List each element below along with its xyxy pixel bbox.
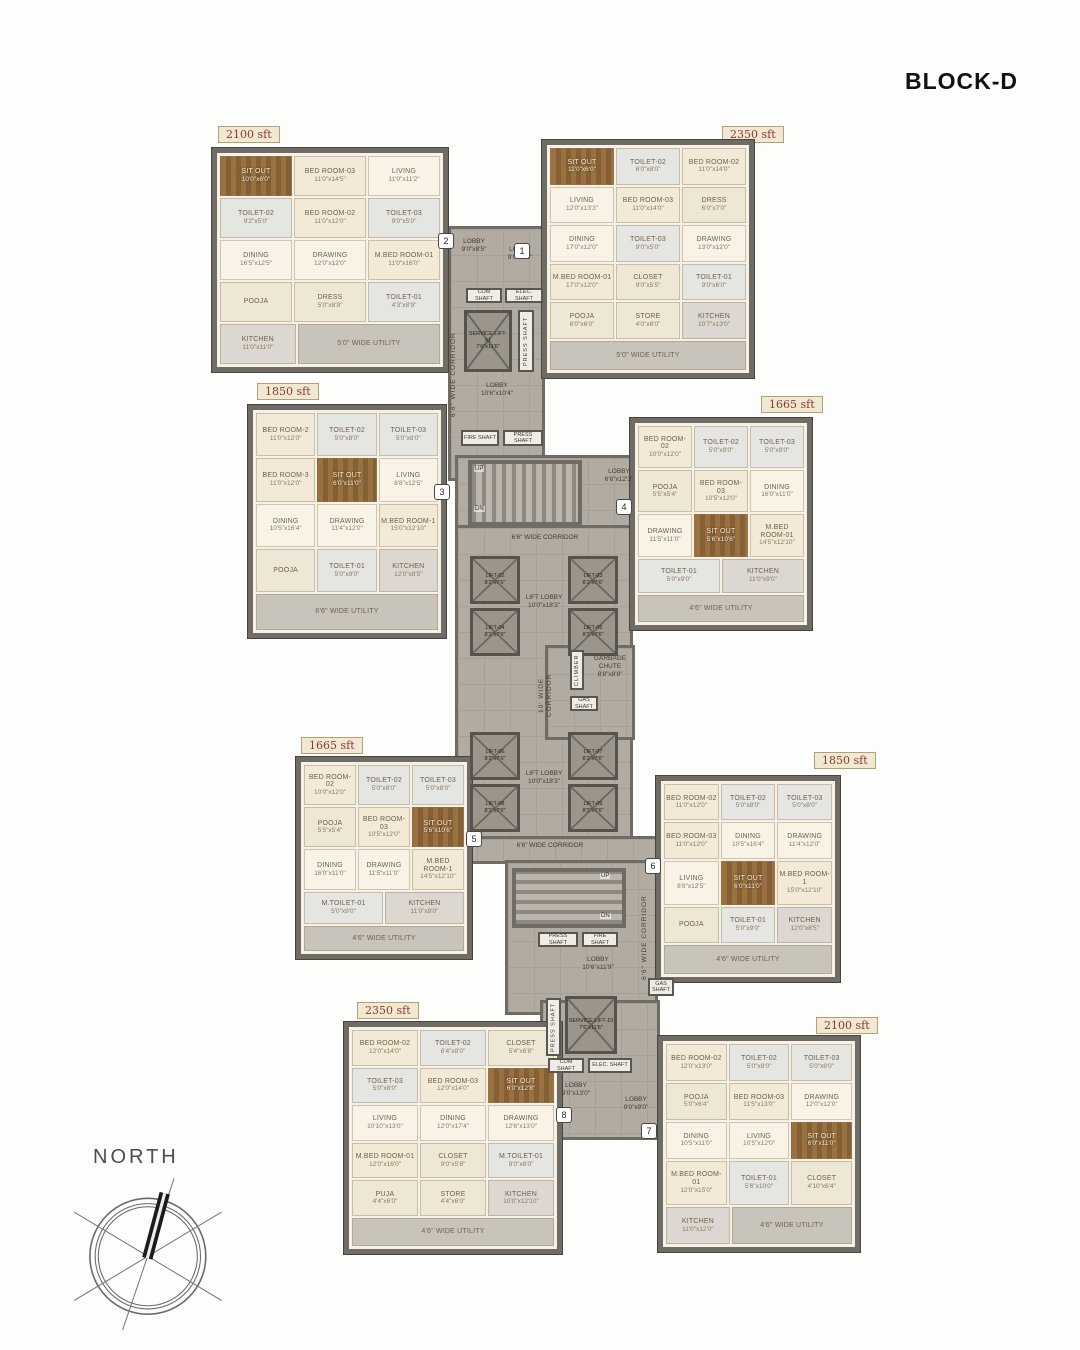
lift: LIFT-028'2"x7'6" bbox=[470, 556, 520, 604]
lift: LIFT-088'2"x7'6" bbox=[470, 784, 520, 832]
lobby-mid-label: LOBBY10'6"x11'9" bbox=[566, 956, 630, 972]
room-tile: M.BED ROOM-0117'0"x12'0" bbox=[550, 264, 614, 301]
room-tile: DRAWING12'0"x12'0" bbox=[294, 240, 366, 280]
room-tile: TOILET-015'0"x9'0" bbox=[721, 907, 776, 943]
core-tag-1: 1 bbox=[514, 243, 530, 259]
room-tile: LIVING8'8"x12'5" bbox=[664, 861, 719, 905]
room-tile: TOILET-035'0"x8'0" bbox=[750, 426, 804, 468]
climber-shaft: CLIMBER bbox=[570, 650, 584, 690]
compass-icon bbox=[72, 1172, 230, 1330]
corridor-label-vertical-top: 6'6" WIDE CORRIDOR bbox=[450, 300, 458, 450]
room-tile: KITCHEN11'0"x12'0" bbox=[666, 1207, 730, 1244]
room-tile: BED ROOM-0211'0"x14'0" bbox=[682, 148, 746, 185]
corridor-label-10: 10' WIDE CORRIDOR bbox=[538, 655, 554, 735]
room-tile: TOILET-035'0"x8'0" bbox=[352, 1068, 418, 1104]
room-tile: DRESS6'0"x7'0" bbox=[682, 187, 746, 224]
room-tile: KITCHEN11'0"x9'0" bbox=[385, 892, 464, 924]
room-tile: TOILET-025'0"x8'0" bbox=[317, 413, 376, 456]
room-tile: TOILET-019'0"x6'0" bbox=[682, 264, 746, 301]
room-tile: LIVING8'8"x12'5" bbox=[379, 458, 438, 501]
lobby-7-label: LOBBY9'0"x9'0" bbox=[608, 1096, 664, 1112]
room-tile: M.BED ROOM-115'0"x12'10" bbox=[379, 504, 438, 547]
elec-shaft: ELEC. SHAFT bbox=[505, 288, 543, 303]
unit-8-2350: BED ROOM-0212'0"x14'0"TOILET-026'4"x8'0"… bbox=[344, 1022, 562, 1254]
room-tile: DRAWING13'0"x12'0" bbox=[682, 225, 746, 262]
room-tile: BED ROOM-0311'0"x14'5" bbox=[294, 156, 366, 196]
room-tile: TOILET-025'0"x8'0" bbox=[721, 784, 776, 820]
core-tag-2: 2 bbox=[438, 233, 454, 249]
room-tile: BED ROOM-0211'0"x12'0" bbox=[664, 784, 719, 820]
room-tile: LIVING11'0"x11'2" bbox=[368, 156, 440, 196]
room-tile: BED ROOM-0312'0"x14'0" bbox=[420, 1068, 486, 1104]
press-shaft-top: PRESS SHAFT bbox=[518, 310, 534, 372]
floor-plan-canvas: { "header": { "title": "BLOCK-D" }, "com… bbox=[0, 0, 1080, 1350]
lift: LIFT-058'2"x7'6" bbox=[568, 608, 618, 656]
room-tile: 5'0" WIDE UTILITY bbox=[550, 341, 746, 370]
room-tile: DRAWING11'4"x12'0" bbox=[317, 504, 376, 547]
room-tile: M.TOILET-015'0"x9'0" bbox=[304, 892, 383, 924]
room-tile: TOILET-015'6"x10'0" bbox=[729, 1161, 790, 1206]
room-tile: BED ROOM-0212'0"x13'0" bbox=[666, 1044, 727, 1081]
room-tile: 4'6" WIDE UTILITY bbox=[352, 1218, 554, 1246]
press-shaft-bottom: PRESS SHAFT bbox=[546, 998, 561, 1056]
lift: LIFT-078'2"x7'6" bbox=[568, 732, 618, 780]
elec-shaft-bottom: ELEC. SHAFT bbox=[588, 1058, 632, 1073]
room-tile: CLOSET9'0"x5'8" bbox=[420, 1143, 486, 1179]
unit-2-rooms: SIT OUT10'0"x6'0"BED ROOM-0311'0"x14'5"L… bbox=[219, 155, 441, 365]
area-badge-unit-2: 2100 sft bbox=[218, 126, 280, 143]
room-tile: POOJA bbox=[220, 282, 292, 322]
room-tile: TOILET-035'0"x8'0" bbox=[379, 413, 438, 456]
room-tile: CLOSET4'10"x6'4" bbox=[791, 1161, 852, 1206]
room-tile: TOILET-039'0"x5'0" bbox=[616, 225, 680, 262]
room-tile: 4'6" WIDE UTILITY bbox=[732, 1207, 852, 1244]
lobby-4-label: LOBBY6'6"x12'3" bbox=[588, 468, 650, 484]
fire-shaft-top: FIRE SHAFT bbox=[461, 430, 499, 446]
room-tile: LIVING12'0"x13'3" bbox=[550, 187, 614, 224]
room-tile: BED ROOM-0310'5"x12'0" bbox=[694, 470, 748, 512]
room-tile: 5'0" WIDE UTILITY bbox=[298, 324, 440, 364]
service-lift-10: SERVICE LIFT-107'6"x11'6" bbox=[565, 996, 617, 1054]
lift-lobby-label-b: LIFT LOBBY10'0"x18'3" bbox=[520, 770, 568, 786]
room-tile: M.BED ROOM-115'0"x12'10" bbox=[777, 861, 832, 905]
gas-shaft-bottom: GAS SHAFT bbox=[648, 978, 674, 996]
room-tile: 4'6" WIDE UTILITY bbox=[304, 926, 464, 951]
room-tile: BED ROOM-0210'0"x12'0" bbox=[638, 426, 692, 468]
lobby-top-label: LOBBY10'6"x10'4" bbox=[462, 382, 532, 398]
corridor-label-h2: 6'6" WIDE CORRIDOR bbox=[470, 842, 630, 850]
room-tile: STORE4'0"x6'0" bbox=[616, 302, 680, 339]
room-tile: KITCHEN12'0"x8'5" bbox=[777, 907, 832, 943]
room-tile: LIVING10'5"x12'0" bbox=[729, 1122, 790, 1159]
room-tile: CLOSET9'0"x5'5" bbox=[616, 264, 680, 301]
com-shaft: COM SHAFT bbox=[466, 288, 502, 303]
page-title: BLOCK-D bbox=[905, 68, 1018, 95]
lift: LIFT-038'2"x7'6" bbox=[568, 556, 618, 604]
room-tile: TOILET-025'0"x8'0" bbox=[694, 426, 748, 468]
lift-lobby-label-a: LIFT LOBBY10'0"x18'3" bbox=[520, 594, 568, 610]
room-tile: M.BED ROOM-0112'0"x16'0" bbox=[352, 1143, 418, 1179]
room-tile: KITCHEN10'0"x12'10" bbox=[488, 1180, 554, 1216]
garbage-chute-label: GARBAGE CHUTE8'8"x8'8" bbox=[588, 655, 632, 679]
room-tile: POOJA6'0"x6'0" bbox=[550, 302, 614, 339]
corridor-label-h1: 6'6" WIDE CORRIDOR bbox=[465, 534, 625, 542]
unit-2-2100: SIT OUT10'0"x6'0"BED ROOM-0311'0"x14'5"L… bbox=[212, 148, 448, 372]
room-tile: BED ROOM-311'0"x12'0" bbox=[256, 458, 315, 501]
press-shaft-top2: PRESS SHAFT bbox=[503, 430, 543, 446]
core-tag-4: 4 bbox=[616, 499, 632, 515]
compass-north-label: NORTH bbox=[93, 1146, 179, 1169]
area-badge-unit-7: 2100 sft bbox=[816, 1017, 878, 1034]
room-tile: PUJA4'4"x6'0" bbox=[352, 1180, 418, 1216]
room-tile: M.BED ROOM-0114'5"x12'10" bbox=[750, 514, 804, 556]
room-tile: DRAWING11'5"x11'0" bbox=[638, 514, 692, 556]
room-tile: DINING10'5"x11'0" bbox=[666, 1122, 727, 1159]
room-tile: M.TOILET-019'0"x8'0" bbox=[488, 1143, 554, 1179]
room-tile: STORE4'4"x6'0" bbox=[420, 1180, 486, 1216]
com-shaft-bottom: COM SHAFT bbox=[548, 1058, 584, 1073]
room-tile: TOILET-014'3"x8'9" bbox=[368, 282, 440, 322]
stairs-dn-label: DN bbox=[474, 506, 485, 512]
press-shaft-lower: PRESS SHAFT bbox=[538, 932, 578, 947]
area-badge-unit-6: 1850 sft bbox=[814, 752, 876, 769]
room-tile: POOJA5'5"x5'4" bbox=[304, 807, 356, 847]
room-tile: TOILET-025'0"x8'0" bbox=[358, 765, 410, 805]
room-tile: DRAWING11'4"x12'0" bbox=[777, 822, 832, 858]
room-tile: BED ROOM-0311'0"x14'0" bbox=[616, 187, 680, 224]
lift: LIFT-048'2"x7'6" bbox=[470, 608, 520, 656]
unit-1-2350: SIT OUT11'0"x6'0"TOILET-026'0"x8'0"BED R… bbox=[542, 140, 754, 378]
unit-3-1850: BED ROOM-211'0"x12'0"TOILET-025'0"x8'0"T… bbox=[248, 405, 446, 638]
room-tile: SIT OUT5'6"x10'6" bbox=[694, 514, 748, 556]
room-tile: DRAWING12'6"x13'0" bbox=[488, 1105, 554, 1141]
room-tile: DRAWING12'0"x12'0" bbox=[791, 1083, 852, 1120]
room-tile: SIT OUT6'0"x12'8" bbox=[488, 1068, 554, 1104]
room-tile: M.BED ROOM-0111'0"x16'0" bbox=[368, 240, 440, 280]
gas-shaft-mid: GAS SHAFT bbox=[570, 696, 598, 711]
room-tile: DINING10'5"x16'4" bbox=[721, 822, 776, 858]
room-tile: TOILET-035'0"x8'0" bbox=[777, 784, 832, 820]
unit-8-rooms: BED ROOM-0212'0"x14'0"TOILET-026'4"x8'0"… bbox=[351, 1029, 555, 1247]
room-tile: SIT OUT6'0"x11'0" bbox=[317, 458, 376, 501]
unit-1-rooms: SIT OUT11'0"x6'0"TOILET-026'0"x8'0"BED R… bbox=[549, 147, 747, 371]
area-badge-unit-4: 1665 sft bbox=[761, 396, 823, 413]
room-tile: TOILET-026'4"x8'0" bbox=[420, 1030, 486, 1066]
staircase-upper bbox=[468, 460, 582, 526]
unit-4-rooms: BED ROOM-0210'0"x12'0"TOILET-025'0"x8'0"… bbox=[637, 425, 805, 623]
room-tile: BED ROOM-0210'0"x12'0" bbox=[304, 765, 356, 805]
room-tile: TOILET-035'0"x8'0" bbox=[791, 1044, 852, 1081]
room-tile: CLOSET5'4"x6'8" bbox=[488, 1030, 554, 1066]
room-tile: BED ROOM-211'0"x12'0" bbox=[256, 413, 315, 456]
room-tile: 4'6" WIDE UTILITY bbox=[664, 945, 832, 974]
room-tile: LIVING10'10"x13'0" bbox=[352, 1105, 418, 1141]
room-tile: M.BED ROOM-114'5"x12'10" bbox=[412, 849, 464, 889]
unit-7-rooms: BED ROOM-0212'0"x13'0"TOILET-025'0"x8'0"… bbox=[665, 1043, 853, 1245]
room-tile: SIT OUT6'0"x11'0" bbox=[791, 1122, 852, 1159]
unit-4-1665: BED ROOM-0210'0"x12'0"TOILET-025'0"x8'0"… bbox=[630, 418, 812, 630]
room-tile: BED ROOM-0310'5"x12'0" bbox=[358, 807, 410, 847]
unit-6-rooms: BED ROOM-0211'0"x12'0"TOILET-025'0"x8'0"… bbox=[663, 783, 833, 975]
core-tag-8: 8 bbox=[556, 1107, 572, 1123]
room-tile: DINING12'0"x17'4" bbox=[420, 1105, 486, 1141]
room-tile: TOILET-015'0"x9'0" bbox=[638, 559, 720, 593]
room-tile: DRESS5'0"x8'9" bbox=[294, 282, 366, 322]
room-tile: BED ROOM-0212'0"x14'0" bbox=[352, 1030, 418, 1066]
room-tile: DINING17'0"x12'0" bbox=[550, 225, 614, 262]
room-tile: POOJA bbox=[664, 907, 719, 943]
area-badge-unit-8: 2350 sft bbox=[357, 1002, 419, 1019]
room-tile: TOILET-015'0"x9'0" bbox=[317, 549, 376, 592]
room-tile: SIT OUT11'0"x6'0" bbox=[550, 148, 614, 185]
service-lift-01: SERVICE LIFT-017'6"x11'6" bbox=[464, 310, 512, 372]
room-tile: DRAWING11'5"x11'0" bbox=[358, 849, 410, 889]
unit-6-1850: BED ROOM-0211'0"x12'0"TOILET-025'0"x8'0"… bbox=[656, 776, 840, 982]
room-tile: TOILET-039'0"x5'0" bbox=[368, 198, 440, 238]
room-tile: KITCHEN10'7"x13'0" bbox=[682, 302, 746, 339]
lift: LIFT-098'2"x7'6" bbox=[568, 784, 618, 832]
room-tile: KITCHEN11'0"x9'0" bbox=[722, 559, 804, 593]
room-tile: POOJA bbox=[256, 549, 315, 592]
unit-7-2100: BED ROOM-0212'0"x13'0"TOILET-025'0"x8'0"… bbox=[658, 1036, 860, 1252]
core-tag-7: 7 bbox=[641, 1123, 657, 1139]
stairs-dn-label-2: DN bbox=[600, 913, 611, 919]
lobby-8-label: LOBBY9'0"x13'0" bbox=[548, 1082, 604, 1098]
lobby-2-label: LOBBY9'0"x8'5" bbox=[452, 238, 496, 254]
core-tag-6: 6 bbox=[645, 858, 661, 874]
unit-3-rooms: BED ROOM-211'0"x12'0"TOILET-025'0"x8'0"T… bbox=[255, 412, 439, 631]
stairs-up-label-2: UP bbox=[600, 873, 610, 879]
room-tile: TOILET-029'2"x5'0" bbox=[220, 198, 292, 238]
room-tile: POOJA5'0"x6'4" bbox=[666, 1083, 727, 1120]
room-tile: KITCHEN12'0"x8'5" bbox=[379, 549, 438, 592]
core-tag-5: 5 bbox=[466, 831, 482, 847]
room-tile: KITCHEN11'0"x11'0" bbox=[220, 324, 296, 364]
room-tile: BED ROOM-0311'5"x13'0" bbox=[729, 1083, 790, 1120]
room-tile: TOILET-026'0"x8'0" bbox=[616, 148, 680, 185]
room-tile: 4'6" WIDE UTILITY bbox=[638, 595, 804, 622]
room-tile: DINING10'5"x16'4" bbox=[256, 504, 315, 547]
stairs-up-label: UP bbox=[474, 466, 484, 472]
area-badge-unit-3: 1850 sft bbox=[257, 383, 319, 400]
room-tile: SIT OUT6'0"x11'0" bbox=[721, 861, 776, 905]
unit-5-rooms: BED ROOM-0210'0"x12'0"TOILET-025'0"x8'0"… bbox=[303, 764, 465, 952]
room-tile: M.BED ROOM-0112'0"x15'0" bbox=[666, 1161, 727, 1206]
room-tile: BED ROOM-0211'0"x12'0" bbox=[294, 198, 366, 238]
room-tile: DINING16'0"x11'0" bbox=[304, 849, 356, 889]
room-tile: 6'6" WIDE UTILITY bbox=[256, 594, 438, 630]
room-tile: TOILET-025'0"x8'0" bbox=[729, 1044, 790, 1081]
unit-5-1665: BED ROOM-0210'0"x12'0"TOILET-025'0"x8'0"… bbox=[296, 757, 472, 959]
room-tile: SIT OUT10'0"x6'0" bbox=[220, 156, 292, 196]
room-tile: DINING16'0"x11'0" bbox=[750, 470, 804, 512]
room-tile: BED ROOM-0311'0"x12'0" bbox=[664, 822, 719, 858]
room-tile: DINING16'5"x12'5" bbox=[220, 240, 292, 280]
fire-shaft-lower: FIRE SHAFT bbox=[582, 932, 618, 947]
area-badge-unit-5: 1665 sft bbox=[301, 737, 363, 754]
core-tag-3: 3 bbox=[434, 484, 450, 500]
lift: LIFT-068'2"x7'6" bbox=[470, 732, 520, 780]
